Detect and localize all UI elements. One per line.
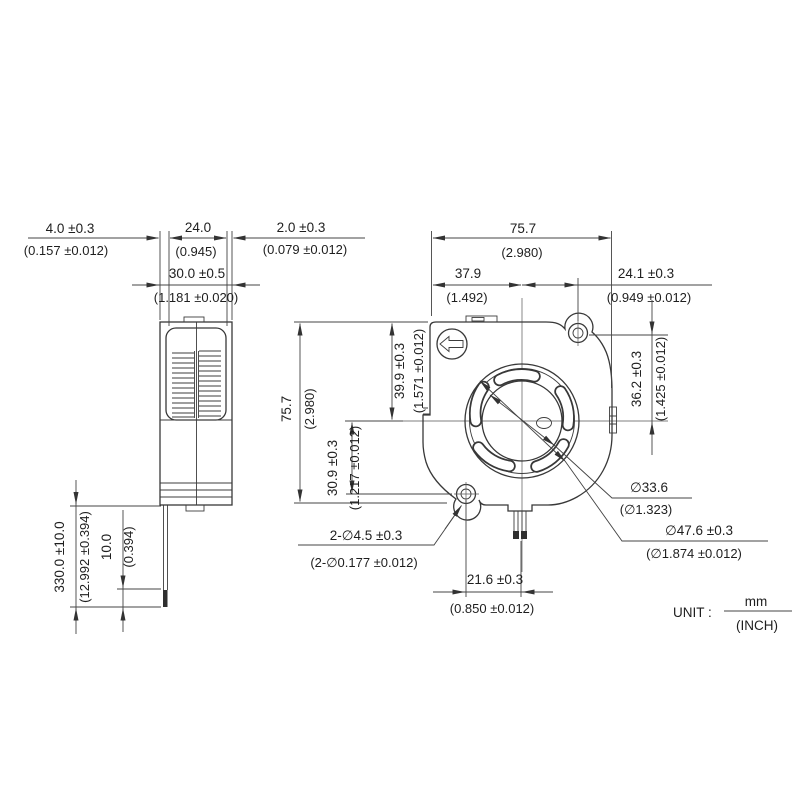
dim-front-extension-lines-left	[294, 322, 452, 503]
side-top-tab	[184, 317, 204, 322]
dim-label-inch: (2-∅0.177 ±0.012)	[310, 555, 417, 570]
dim-label-mm: 2.0 ±0.3	[277, 220, 326, 235]
dim-label-inch: (0.394)	[121, 526, 136, 567]
dim-front-overall-height: 75.7 (2.980)	[279, 324, 317, 502]
dim-label-inch: (∅1.323)	[620, 502, 673, 517]
hub-detail-slot	[537, 418, 552, 429]
dim-label-mm: ∅33.6	[630, 480, 668, 495]
dim-side-vent-width: 24.0 (0.945)	[170, 220, 226, 259]
dim-label-inch: (1.492)	[446, 290, 487, 305]
side-base-lines	[160, 420, 232, 497]
dim-label-inch: (0.945)	[175, 244, 216, 259]
dim-side-flange-left: 4.0 ±0.3 (0.157 ±0.012)	[24, 221, 159, 258]
dim-label-mm: 75.7	[510, 221, 536, 236]
dim-label-inch: (∅1.874 ±0.012)	[646, 546, 742, 561]
front-lead-wires	[513, 511, 527, 539]
dim-side-flange-right: 2.0 ±0.3 (0.079 ±0.012)	[234, 220, 366, 257]
dim-label-inch: (0.079 ±0.012)	[263, 242, 347, 257]
dim-label-inch: (0.949 ±0.012)	[607, 290, 691, 305]
dim-label-mm: 39.9 ±0.3	[392, 343, 407, 399]
unit-mm: mm	[745, 594, 768, 609]
unit-note: UNIT : mm (INCH)	[673, 594, 792, 633]
rotation-direction-icon	[437, 329, 467, 359]
mounting-hole-top-right	[569, 321, 588, 346]
dim-label-inch: (1.425 ±0.012)	[653, 337, 668, 421]
dim-label-mm: 21.6 ±0.3	[467, 572, 523, 587]
dim-label-inch: (2.980)	[501, 245, 542, 260]
front-right-rib	[610, 407, 617, 433]
dim-label-mm: 24.0	[185, 220, 211, 235]
unit-inch: (INCH)	[736, 618, 778, 633]
dim-label-mm: 30.9 ±0.3	[325, 440, 340, 496]
side-lead-wire	[164, 505, 168, 590]
dim-label-mm: 30.0 ±0.5	[169, 266, 225, 281]
dim-front-center-to-hole-y: 30.9 ±0.3 (1.217 ±0.012)	[325, 423, 362, 511]
dim-label-mm: 330.0 ±10.0	[52, 521, 67, 592]
dim-front-center-to-hole-x: 24.1 ±0.3 (0.949 ±0.012)	[522, 266, 712, 305]
dim-label-inch: (1.181 ±0.020)	[154, 290, 238, 305]
dim-front-overall-width: 75.7 (2.980)	[433, 221, 611, 260]
side-bottom-tab	[186, 505, 204, 511]
dim-front-left-to-center: 37.9 (1.492)	[433, 266, 521, 305]
dim-label-mm: 37.9	[455, 266, 481, 281]
unit-label: UNIT :	[673, 605, 712, 620]
engineering-drawing-page: 4.0 ±0.3 (0.157 ±0.012) 24.0 (0.945) 2.0…	[0, 0, 800, 800]
dim-label-mm: 10.0	[99, 534, 114, 560]
blower-fan-dimension-drawing: 4.0 ±0.3 (0.157 ±0.012) 24.0 (0.945) 2.0…	[0, 0, 800, 800]
dim-side-wire-strip-length: 10.0 (0.394)	[99, 510, 136, 632]
dim-hole-to-lead-x: 21.6 ±0.3 (0.850 ±0.012)	[433, 500, 553, 616]
mounting-hole-bottom-left	[454, 482, 479, 506]
side-wire-stripped-end	[163, 590, 168, 607]
dim-label-mm: 4.0 ±0.3	[46, 221, 95, 236]
dim-label-inch: (2.980)	[302, 388, 317, 429]
dim-label-mm: 2-∅4.5 ±0.3	[330, 528, 402, 543]
dim-side-overall-width: 30.0 ±0.5 (1.181 ±0.020)	[132, 266, 260, 305]
dim-label-mm: 36.2 ±0.3	[629, 351, 644, 407]
dim-label-inch: (1.217 ±0.012)	[347, 426, 362, 510]
dim-label-inch: (0.850 ±0.012)	[450, 601, 534, 616]
dim-mounting-holes: 2-∅4.5 ±0.3 (2-∅0.177 ±0.012)	[298, 506, 462, 571]
dim-label-mm: ∅47.6 ±0.3	[665, 523, 733, 538]
dim-label-mm: 24.1 ±0.3	[618, 266, 674, 281]
dim-front-hole-to-center-y: 36.2 ±0.3 (1.425 ±0.012)	[589, 300, 668, 455]
side-housing-outline	[160, 322, 232, 505]
dim-front-top-to-center: 39.9 ±0.3 (1.571 ±0.012)	[392, 324, 426, 420]
dim-label-inch: (0.157 ±0.012)	[24, 243, 108, 258]
dim-label-mm: 75.7	[279, 396, 294, 422]
front-view-drawing: 75.7 (2.980) 37.9 (1.492) 24.1 ±0.3 (0.9…	[279, 221, 768, 616]
front-top-tab	[466, 316, 497, 322]
dim-label-inch: (1.571 ±0.012)	[411, 329, 426, 413]
dim-label-inch: (12.992 ±0.394)	[77, 511, 92, 603]
